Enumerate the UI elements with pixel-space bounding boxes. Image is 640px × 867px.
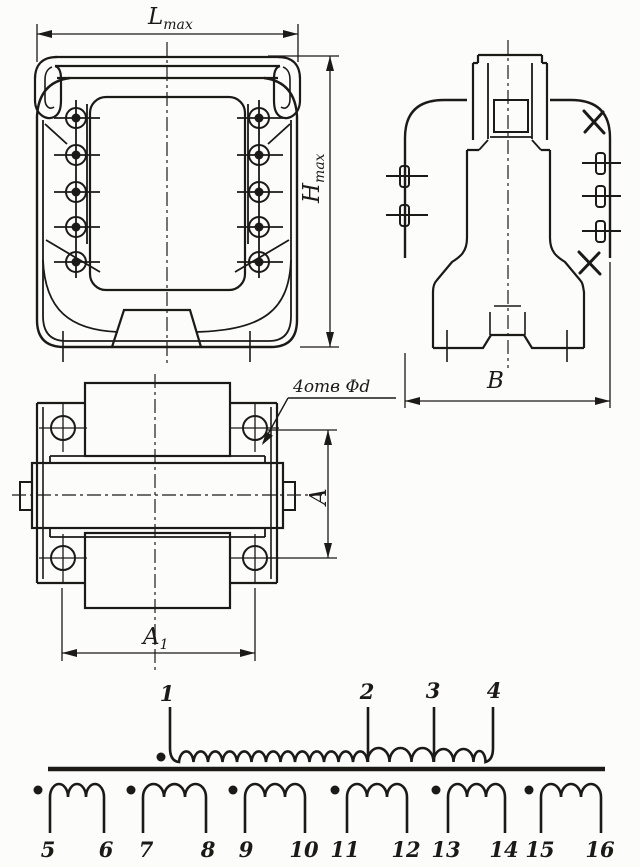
side-bracket-window	[494, 100, 528, 132]
dim-a1-label: A1	[141, 624, 169, 653]
top-mounting-holes	[39, 404, 279, 582]
dim-b-label: В	[486, 368, 504, 394]
secondary-terminal-14: 14	[489, 837, 518, 862]
side-lugs-right	[582, 153, 621, 242]
secondary-wire-4	[347, 784, 407, 833]
secondary-wire-3	[245, 784, 305, 833]
top-view: A A1 4отв Φd	[12, 374, 396, 670]
secondary-terminal-16: 16	[585, 837, 615, 862]
secondary-wire-5	[448, 784, 505, 833]
secondary-wire-1	[50, 784, 104, 833]
secondary-wire-6	[541, 784, 601, 833]
top-frame-inner	[43, 407, 271, 579]
secondary-terminal-7: 7	[139, 837, 154, 862]
side-core-column	[433, 150, 584, 362]
primary-polarity-dot	[157, 753, 166, 762]
secondary-terminal-8: 8	[200, 837, 216, 862]
secondary-terminal-6: 6	[99, 837, 114, 862]
primary-terminal-3: 3	[426, 678, 441, 703]
secondary-terminal-10: 10	[289, 837, 319, 862]
secondary-terminal-5: 5	[41, 837, 56, 862]
dim-a1: A1	[62, 588, 255, 661]
top-coil-tab-left	[20, 482, 32, 510]
primary-winding: 1 2 3 4	[157, 678, 502, 762]
holes-note-label: 4отв Φd	[292, 377, 370, 397]
dim-a-label: A	[306, 488, 332, 507]
front-view: Lmax Hmax	[35, 4, 339, 366]
primary-wire	[170, 707, 493, 762]
primary-taps	[368, 707, 434, 762]
top-coil-tab-right	[283, 482, 295, 510]
side-view: В	[386, 40, 621, 408]
winding-schematic: 1 2 3 4 5 6 7 8 9 10 11 12 13	[34, 678, 615, 862]
top-centerlines	[12, 374, 322, 670]
top-core-upper	[85, 383, 230, 456]
secondary-terminal-11: 11	[330, 837, 359, 862]
secondary-terminal-15: 15	[525, 837, 554, 862]
dim-hmax-label: Hmax	[299, 153, 328, 204]
front-terminals-left	[54, 108, 100, 272]
top-frame-outline	[37, 403, 277, 583]
top-core-lower	[85, 533, 230, 608]
primary-terminal-1: 1	[160, 681, 175, 706]
secondary-terminal-12: 12	[391, 837, 420, 862]
side-top-bracket	[473, 55, 547, 150]
dim-lmax-label: Lmax	[147, 4, 193, 33]
side-cross-marks	[579, 111, 604, 274]
secondary-terminal-13: 13	[431, 837, 460, 862]
dim-a: A	[268, 430, 337, 558]
secondary-windings: 5 6 7 8 9 10 11 12 13 14 15 16	[34, 784, 615, 862]
drawing-sheet: Lmax Hmax	[0, 0, 640, 867]
secondary-wire-2	[143, 784, 206, 833]
primary-terminal-2: 2	[359, 679, 375, 704]
top-bobbin-flanges	[50, 456, 265, 537]
primary-terminal-4: 4	[487, 678, 502, 703]
secondary-terminal-9: 9	[239, 837, 254, 862]
side-lugs-left	[386, 166, 428, 226]
transformer-drawing: Lmax Hmax	[0, 0, 640, 867]
